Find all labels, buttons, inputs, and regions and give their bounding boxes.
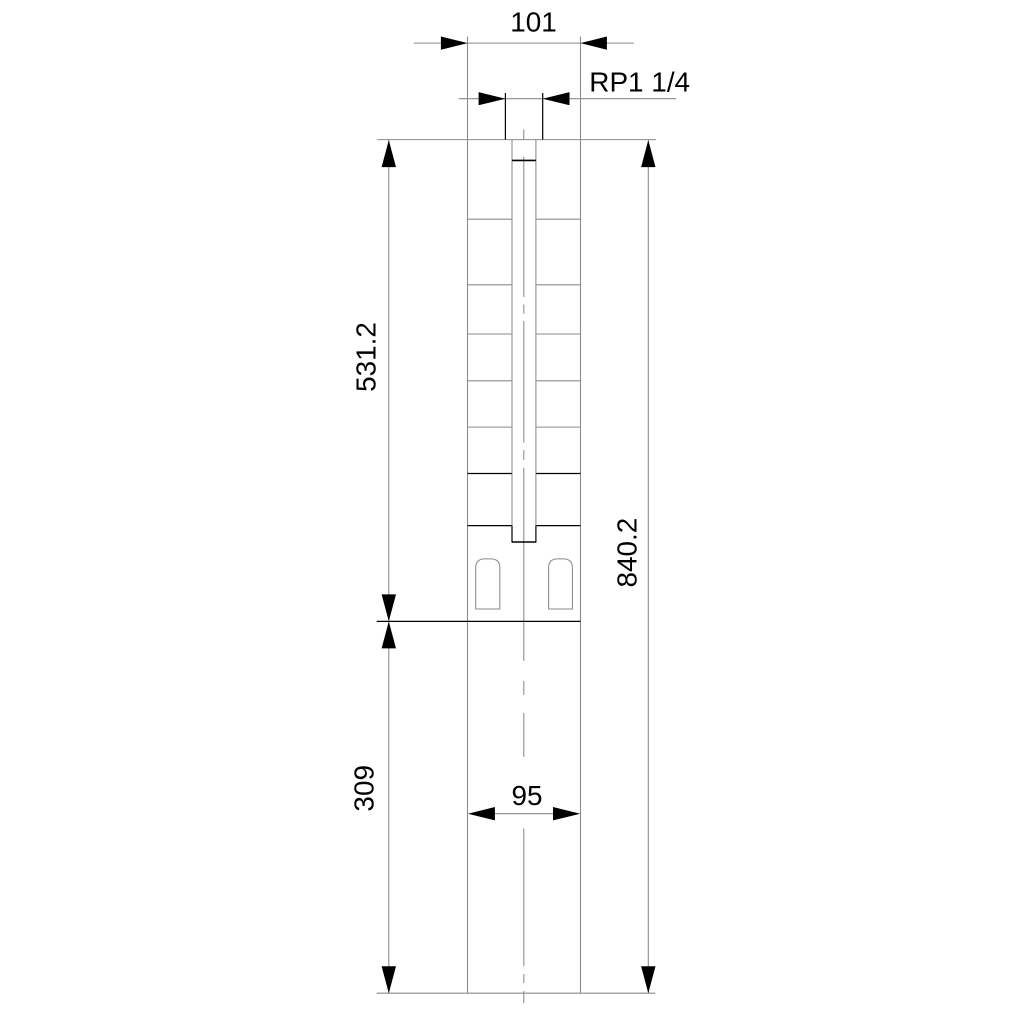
svg-text:95: 95 bbox=[511, 780, 542, 811]
svg-text:309: 309 bbox=[349, 765, 380, 812]
svg-text:101: 101 bbox=[510, 7, 557, 38]
svg-text:840.2: 840.2 bbox=[612, 518, 643, 588]
svg-text:531.2: 531.2 bbox=[350, 322, 381, 392]
svg-text:RP1 1/4: RP1 1/4 bbox=[589, 67, 690, 98]
